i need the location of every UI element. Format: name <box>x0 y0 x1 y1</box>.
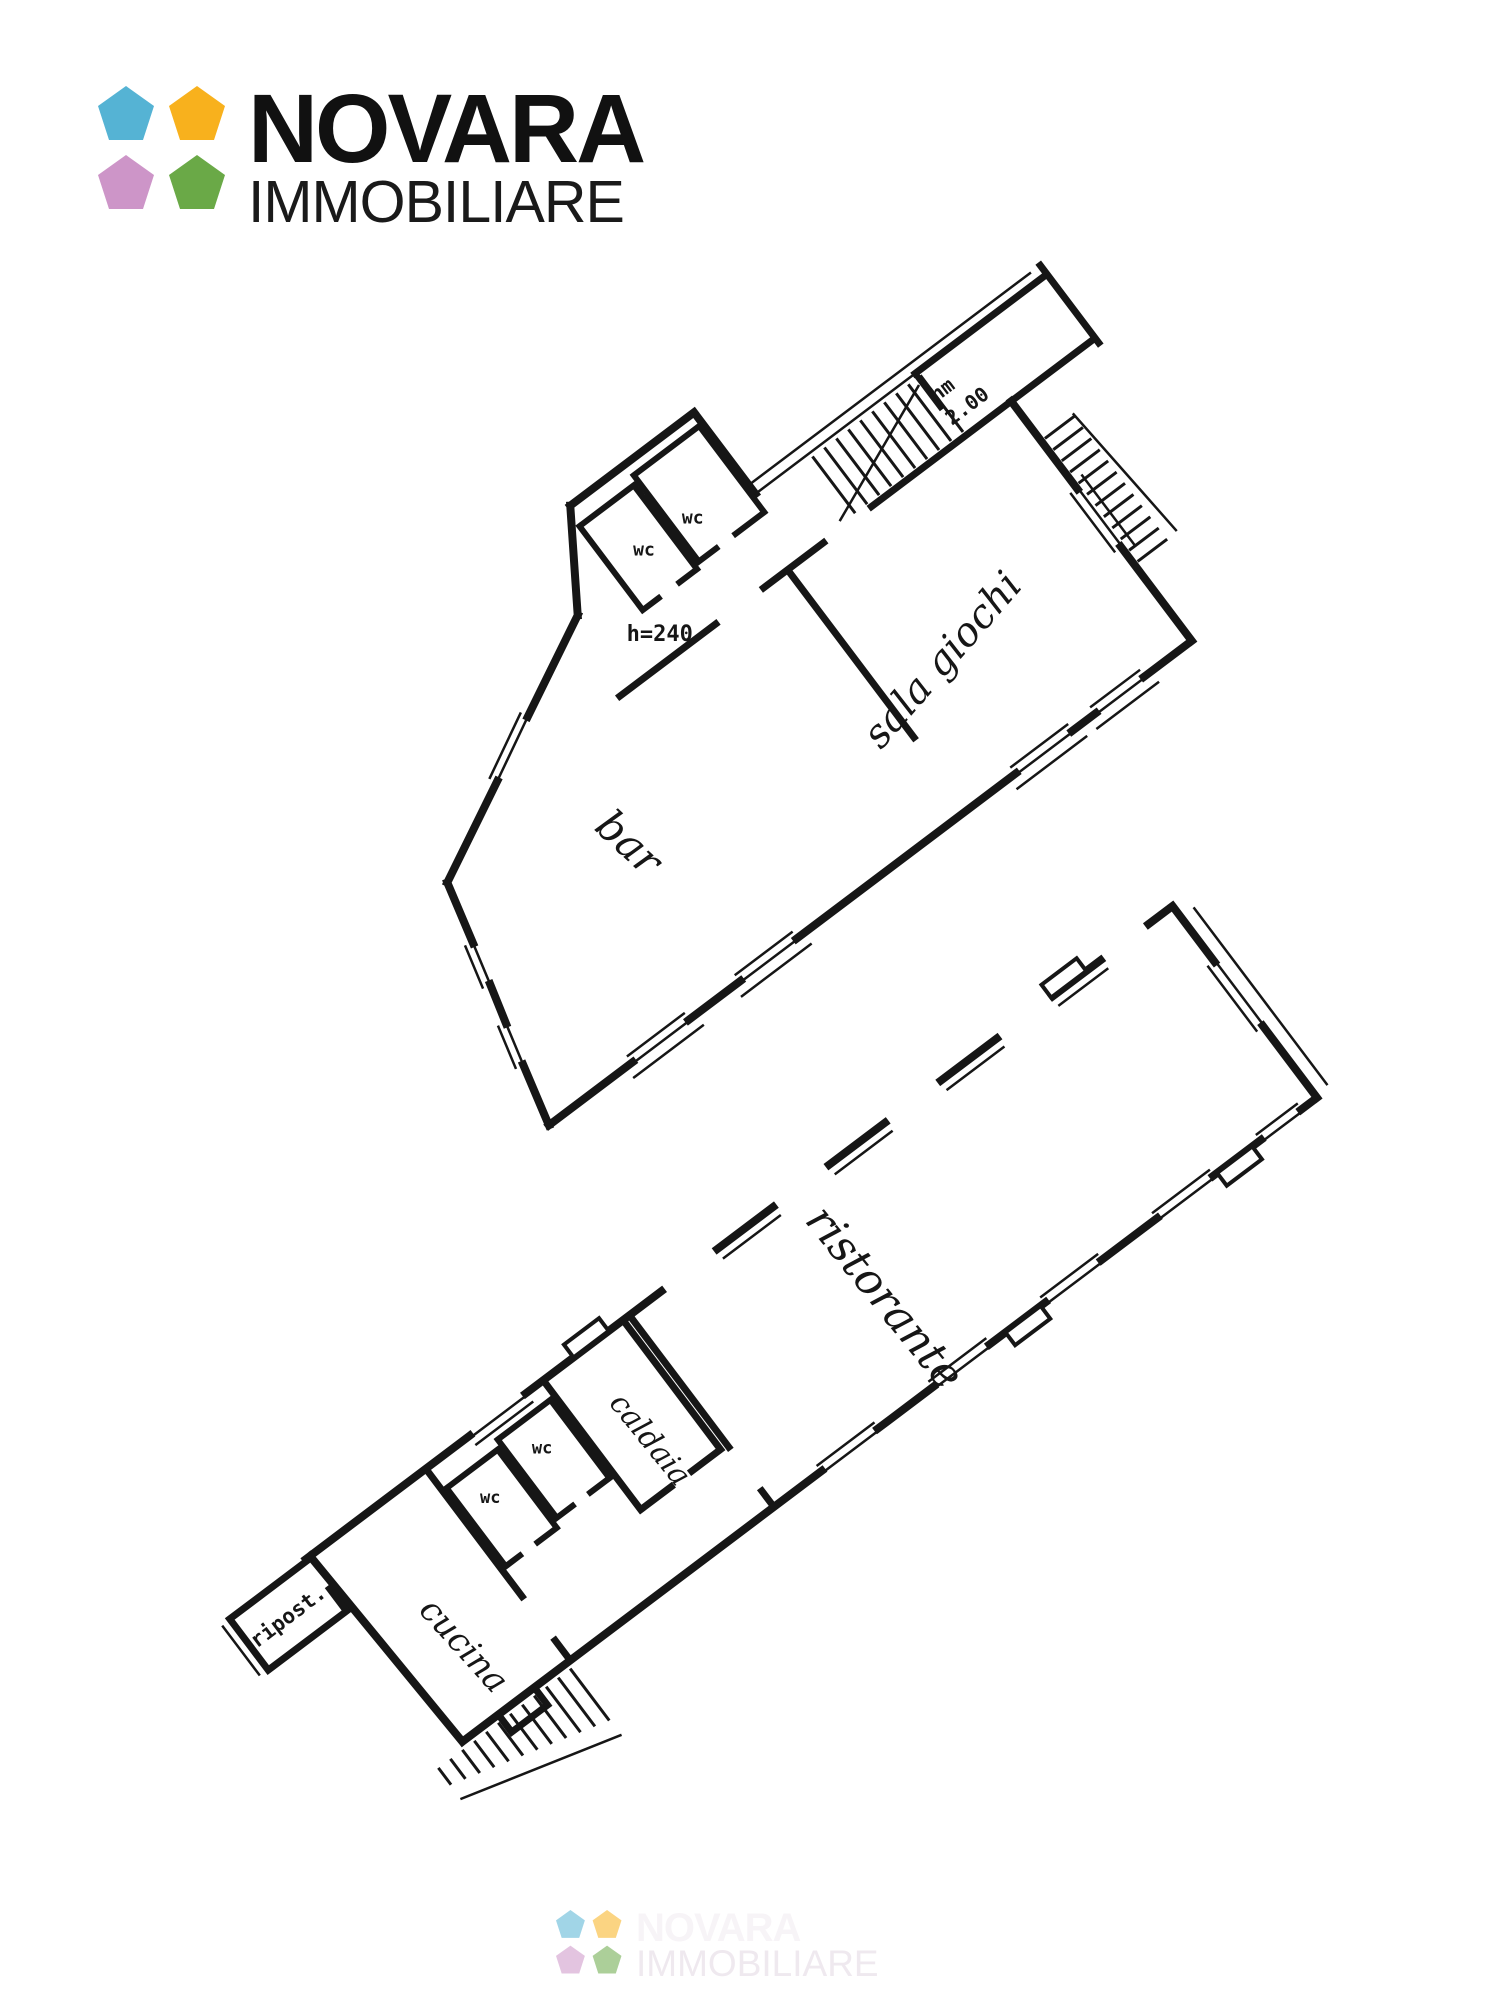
agency-watermark: NOVARA IMMOBILIARE <box>556 1910 879 1982</box>
room-label-wc-upper-right: wc <box>682 508 704 529</box>
room-label-wc-upper-left: wc <box>633 539 655 560</box>
room-label-bar: bar <box>586 800 674 887</box>
watermark-pentagon-blue-icon <box>556 1910 585 1938</box>
room-label-sala-giochi: sala giochi <box>854 563 1031 757</box>
upper-partition-walls <box>565 265 1221 863</box>
watermark-houses-icon <box>556 1910 622 1974</box>
room-label-ristorante: ristorante <box>795 1196 974 1400</box>
watermark-subtitle: IMMOBILIARE <box>636 1946 879 1982</box>
lower-window-lines <box>222 898 1384 1887</box>
floorplan-drawing: bar sala giochi wc wc h=240 hm 2.00 <box>0 0 1500 2000</box>
room-label-wc-lower-right: wc <box>532 1439 552 1459</box>
room-label-cucina: cucina <box>411 1590 516 1701</box>
label-height-note: h=240 <box>627 622 693 647</box>
lower-partition-walls <box>229 1315 788 1826</box>
watermark-pentagon-green-icon <box>593 1946 622 1974</box>
floor-plan-lower: ristorante caldaia wc wc ripost. cucina <box>211 884 1384 1887</box>
room-label-ripostiglio: ripost. <box>245 1580 330 1652</box>
watermark-pentagon-pink-icon <box>556 1946 585 1974</box>
listing-floorplan-page: NOVARA IMMOBILIARE bar sala giochi wc wc <box>0 0 1500 2000</box>
watermark-pentagon-yellow-icon <box>593 1910 622 1938</box>
lower-wc-walls <box>442 1400 614 1567</box>
watermark-title: NOVARA <box>636 1910 879 1946</box>
upper-window-lines <box>320 273 1273 1131</box>
room-label-wc-lower-left: wc <box>480 1488 500 1508</box>
floor-plan-upper: bar sala giochi wc wc h=240 hm 2.00 <box>259 193 1284 1136</box>
